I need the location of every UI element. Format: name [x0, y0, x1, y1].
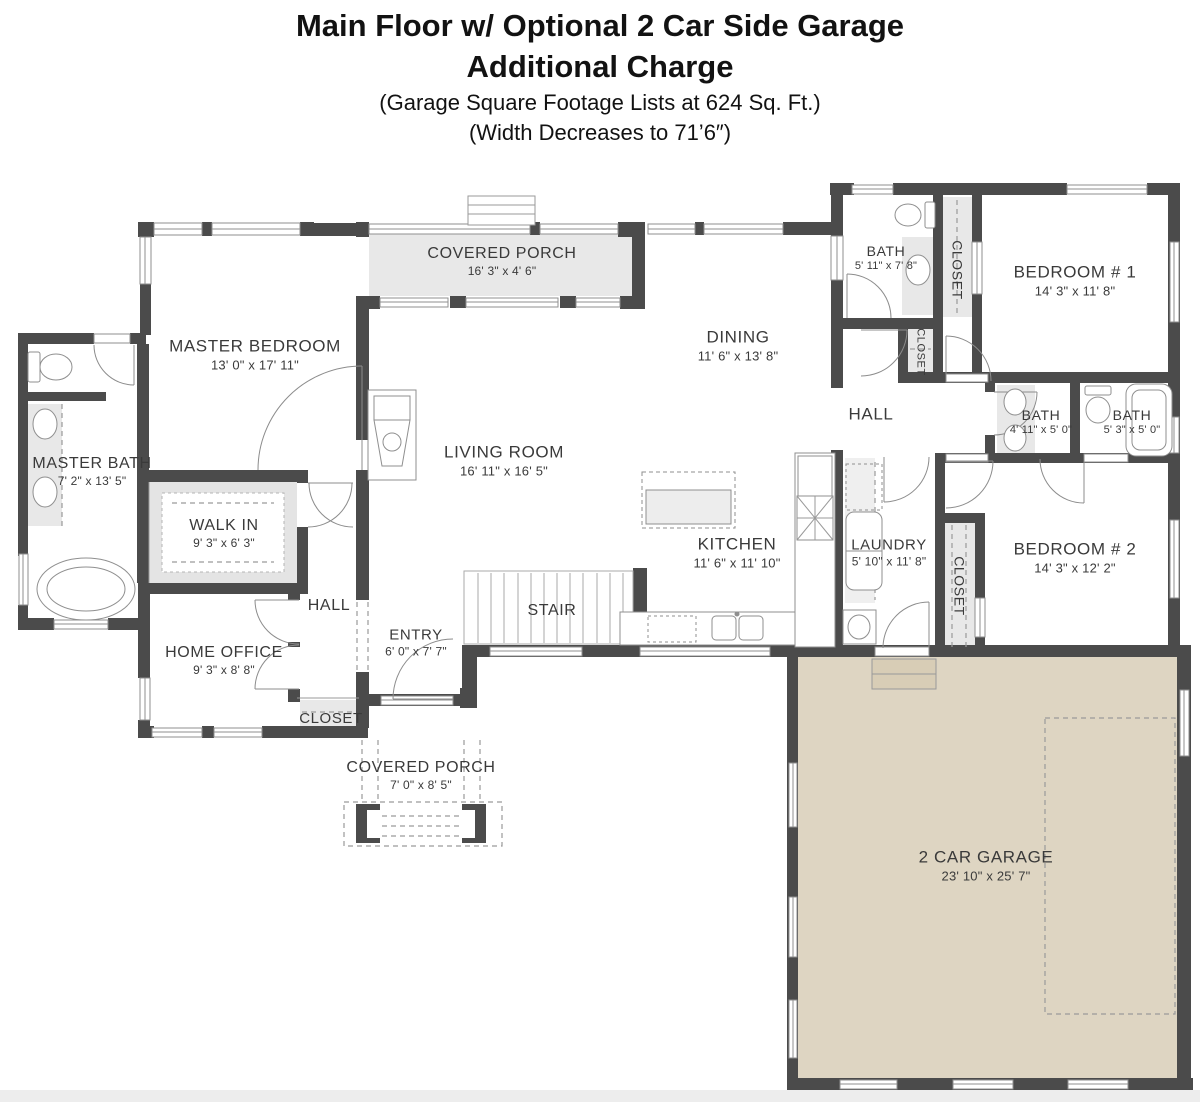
label-hall-left: HALL: [308, 596, 350, 616]
label-kitchen: KITCHEN 11' 6" x 11' 10": [693, 535, 780, 572]
label-walk-in: WALK IN 9' 3" x 6' 3": [189, 516, 258, 550]
floor-plan-page: Main Floor w/ Optional 2 Car Side Garage…: [0, 0, 1200, 1102]
label-stair: STAIR: [528, 601, 577, 621]
label-bedroom-2: BEDROOM # 2 14' 3" x 12' 2": [1014, 540, 1137, 577]
toilet-bath-top: [925, 202, 935, 228]
label-hall-right: HALL: [849, 405, 894, 426]
fireplace: [368, 390, 416, 480]
label-closet-bath-top: CLOSET: [948, 240, 965, 300]
label-bedroom-1: BEDROOM # 1 14' 3" x 11' 8": [1014, 263, 1137, 300]
kitchen-sink: [712, 616, 736, 640]
toilet-master: [28, 352, 40, 382]
label-living-room: LIVING ROOM 16' 11" x 16' 5": [444, 443, 564, 480]
porch-posts: [356, 804, 486, 843]
dishwasher: [648, 616, 696, 642]
label-closet-laundry: CLOSET: [950, 556, 967, 616]
label-closet-hall: CLOSET: [913, 328, 926, 376]
label-home-office: HOME OFFICE 9' 3" x 8' 8": [165, 643, 283, 677]
sink-master-1: [33, 409, 57, 439]
label-covered-porch-bottom: COVERED PORCH 7' 0" x 8' 5": [346, 758, 495, 792]
chimney: [468, 196, 535, 225]
refrigerator: [798, 456, 832, 496]
label-dining: DINING 11' 6" x 13' 8": [698, 328, 779, 365]
room-fills: [28, 197, 1178, 1078]
label-master-bedroom: MASTER BEDROOM 13' 0" x 17' 11": [169, 337, 341, 374]
page-edge-shadow: [0, 1090, 1200, 1102]
label-master-bath: MASTER BATH 7' 2" x 13' 5": [32, 454, 151, 488]
label-bath-right: BATH 5' 3" x 5' 0": [1104, 407, 1161, 437]
label-laundry: LAUNDRY 5' 10" x 11' 8": [851, 537, 927, 570]
kitchen-counter: [620, 612, 795, 645]
label-entry: ENTRY 6' 0" x 7' 7": [385, 627, 447, 660]
toilet-bathB: [1085, 386, 1111, 395]
label-bath-middle: BATH 4' 11" x 5' 0": [1010, 407, 1072, 437]
label-bath-top: BATH 5' 11" x 7' 8": [855, 243, 917, 273]
label-covered-porch-top: COVERED PORCH 16' 3" x 4' 6": [427, 244, 576, 278]
label-garage: 2 CAR GARAGE 23' 10" x 25' 7": [919, 848, 1054, 885]
label-closet-bottom: CLOSET: [299, 710, 363, 728]
